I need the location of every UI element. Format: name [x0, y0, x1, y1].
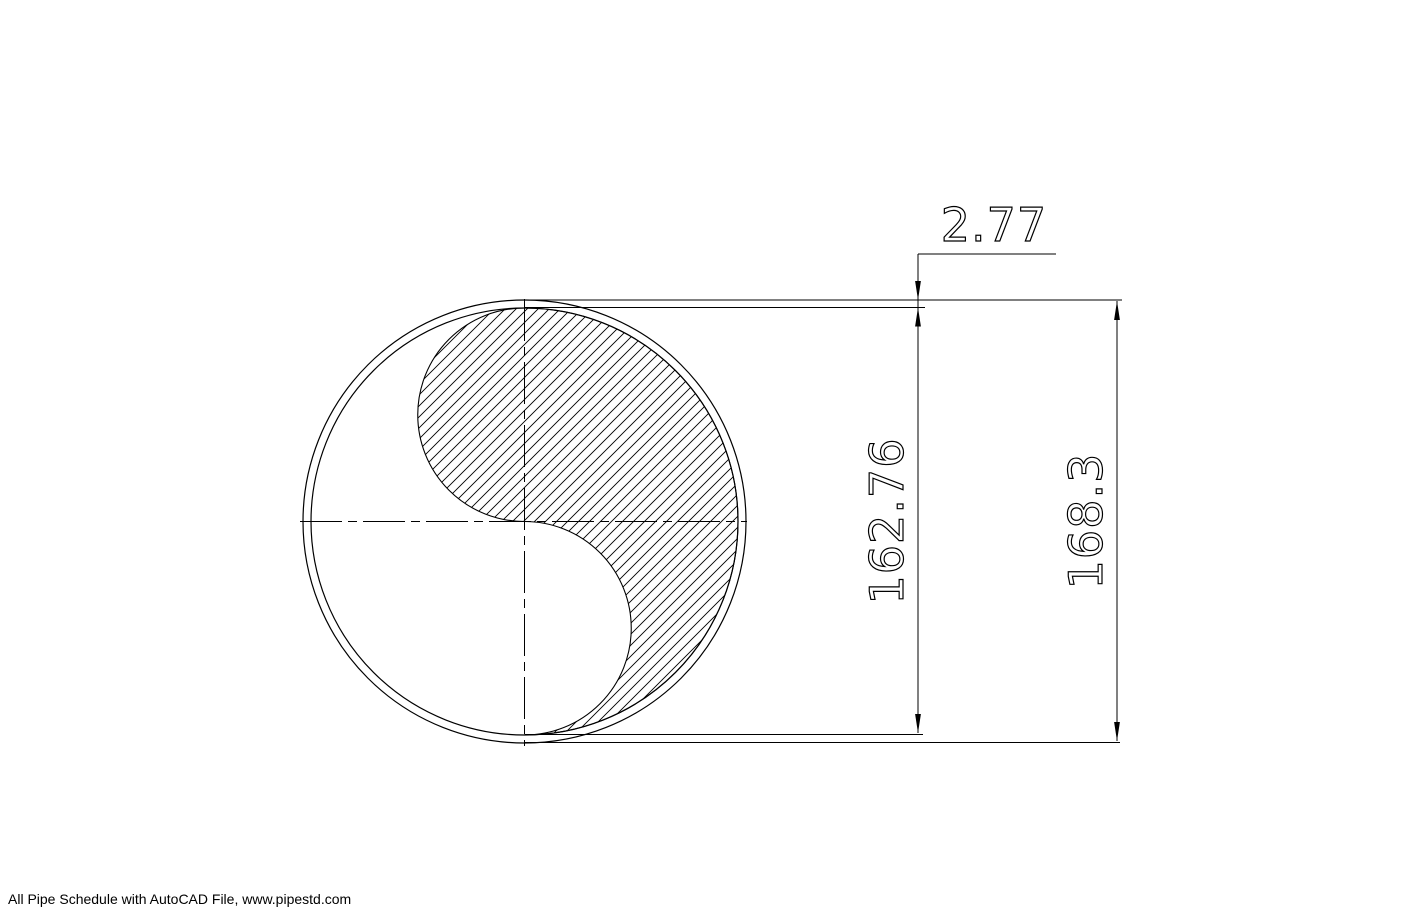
- pipe-cross-section: [300, 299, 747, 746]
- wall-dim-arrow-down: [915, 281, 921, 300]
- outer-diameter-label: 168.3: [1059, 453, 1113, 590]
- dimension-wall-thickness: 2.77: [915, 198, 1056, 733]
- footer-credit-text: All Pipe Schedule with AutoCAD File, www…: [8, 891, 351, 907]
- dimension-inner-diameter: 162.76: [860, 438, 921, 733]
- pipe-section-drawing: 2.77 162.76 168.3: [0, 0, 1423, 921]
- cad-drawing-canvas: 2.77 162.76 168.3 All Pipe Schedule with…: [0, 0, 1423, 921]
- dimension-outer-diameter: 168.3: [1059, 301, 1120, 741]
- inner-dim-arrow-bottom: [915, 714, 921, 733]
- inner-diameter-label: 162.76: [860, 438, 914, 605]
- wall-dim-arrow-up: [915, 308, 921, 327]
- outer-dim-arrow-top: [1114, 301, 1120, 320]
- outer-dim-arrow-bottom: [1114, 722, 1120, 741]
- wall-thickness-label: 2.77: [941, 198, 1047, 252]
